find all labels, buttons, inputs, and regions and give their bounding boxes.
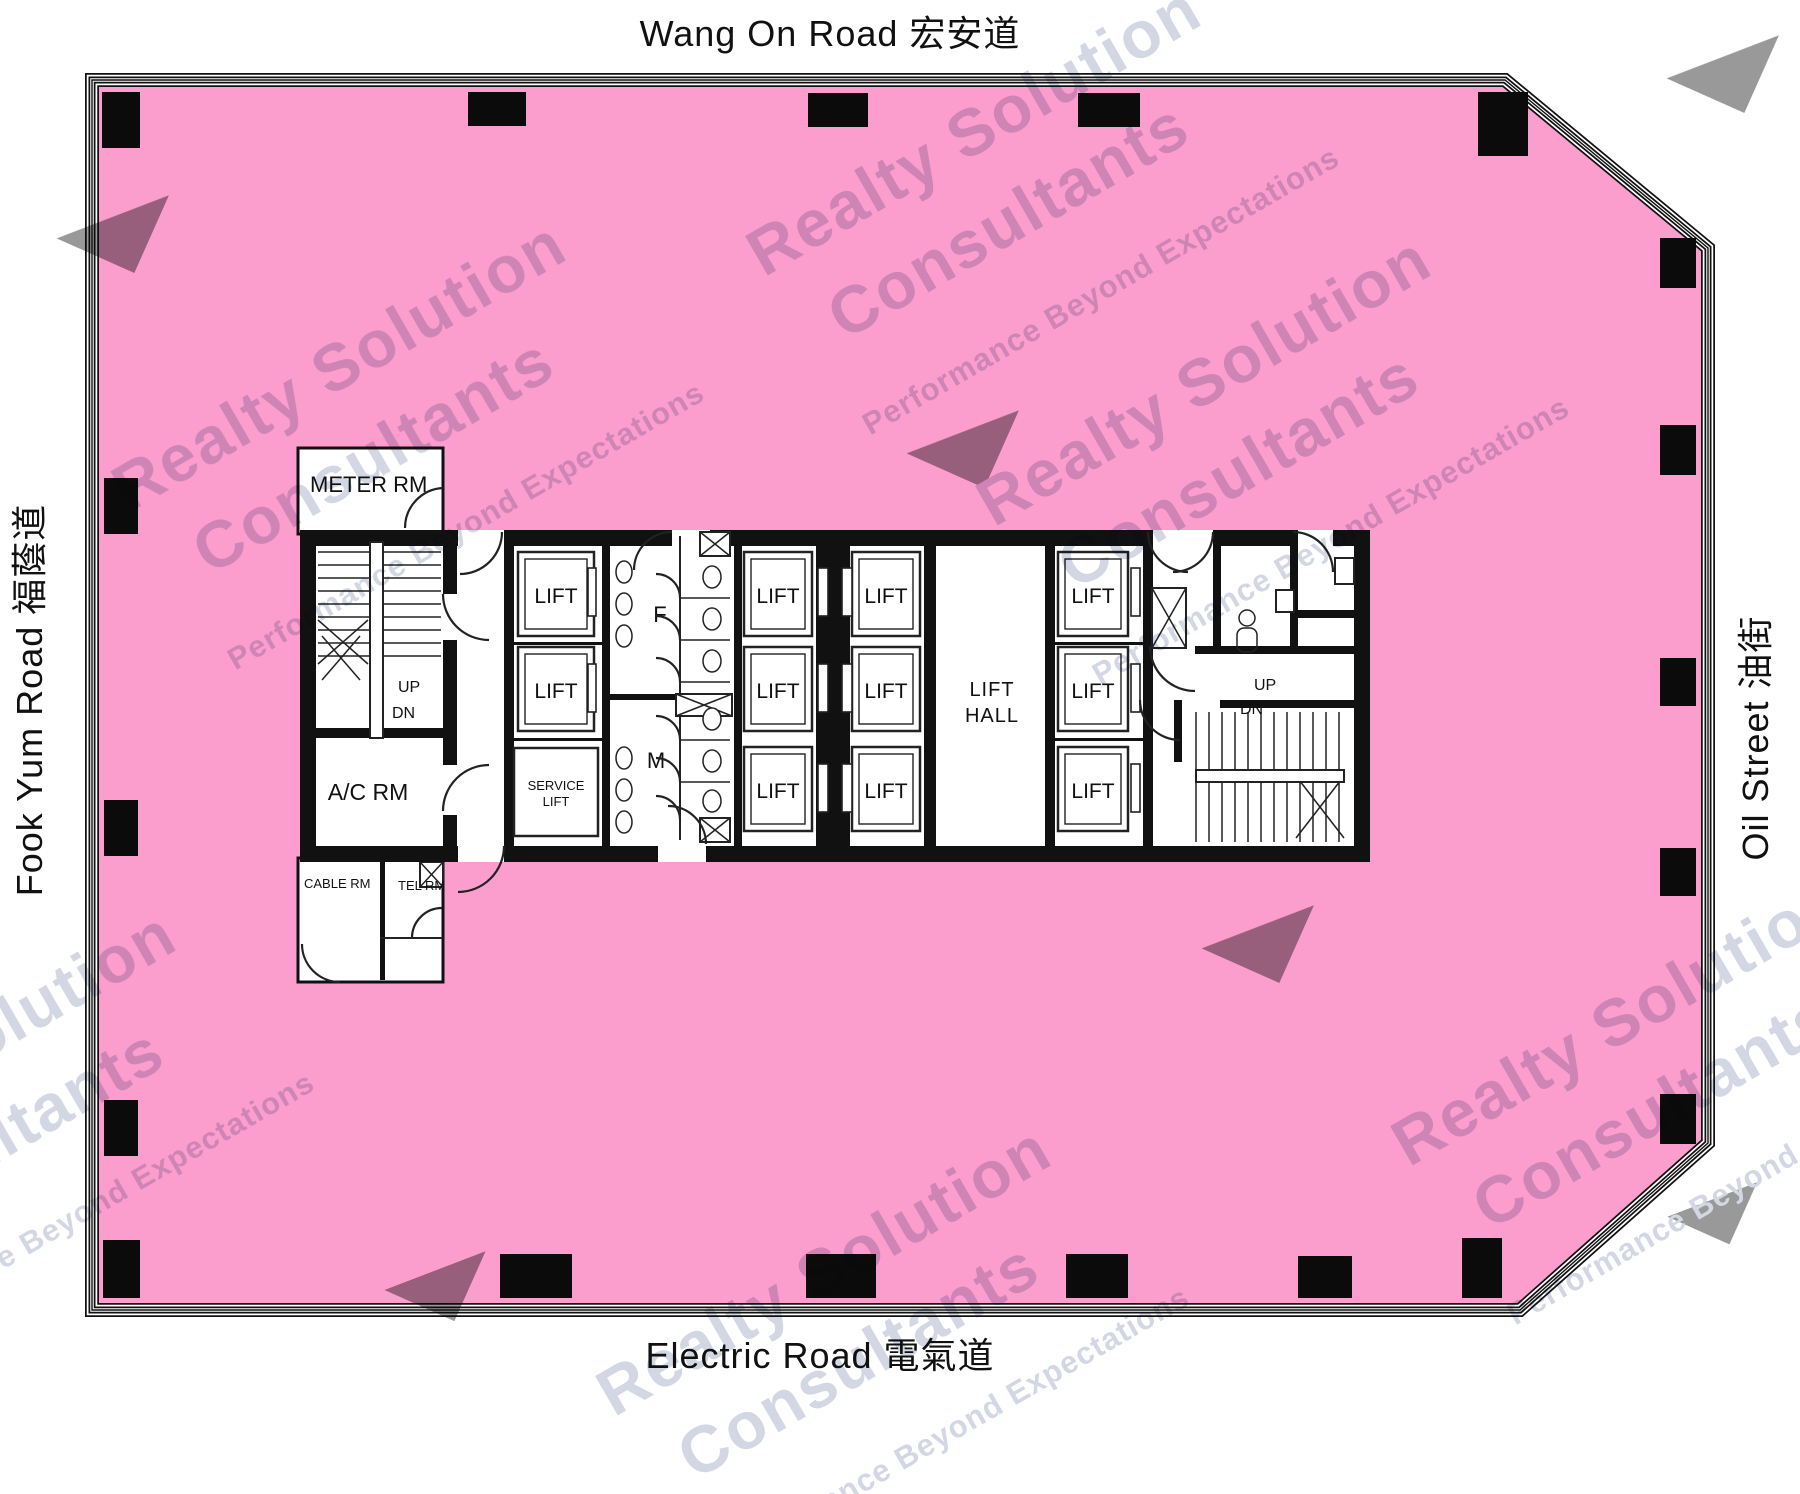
lift-label: LIFT	[756, 680, 799, 703]
road-label-top: Wang On Road 宏安道	[640, 13, 1021, 54]
lift-label: LIFT	[534, 680, 577, 703]
svg-text:HALL: HALL	[965, 705, 1019, 727]
floor-plan-drawing: UP DN A/C RM METER RM CABLE RM TEL RM LI…	[0, 0, 1800, 1494]
stair-right-down-label: DN	[1240, 701, 1263, 718]
lift-label: LIFT	[864, 680, 907, 703]
lift-label: LIFT	[864, 780, 907, 803]
floor-plan-page: UP DN A/C RM METER RM CABLE RM TEL RM LI…	[0, 0, 1800, 1494]
tel-room-label: TEL RM	[398, 878, 445, 893]
lift-label: LIFT	[756, 585, 799, 608]
lift-bank-3: LIFT LIFT LIFT	[842, 552, 920, 831]
lift-label: LIFT	[1071, 780, 1114, 803]
cable-room-label: CABLE RM	[304, 876, 370, 891]
lift-bank-1: LIFT LIFT SERVICE LIFT	[514, 552, 602, 836]
service-lift-label: SERVICE	[528, 778, 585, 793]
ac-room-label: A/C RM	[328, 779, 409, 805]
stair-left-up-label: UP	[398, 679, 420, 696]
stair-left-down-label: DN	[392, 705, 415, 722]
female-toilet-label: F	[653, 602, 666, 627]
road-label-left: Fook Yum Road 福蔭道	[9, 504, 50, 897]
lift-label: LIFT	[534, 585, 577, 608]
road-label-right: Oil Street 油街	[1735, 615, 1776, 860]
male-toilet-label: M	[647, 748, 665, 773]
lift-label: LIFT	[864, 585, 907, 608]
lift-label: LIFT	[756, 780, 799, 803]
svg-text:LIFT: LIFT	[543, 794, 570, 809]
lift-hall-label: LIFT	[969, 679, 1014, 701]
stair-right-up-label: UP	[1254, 677, 1276, 694]
